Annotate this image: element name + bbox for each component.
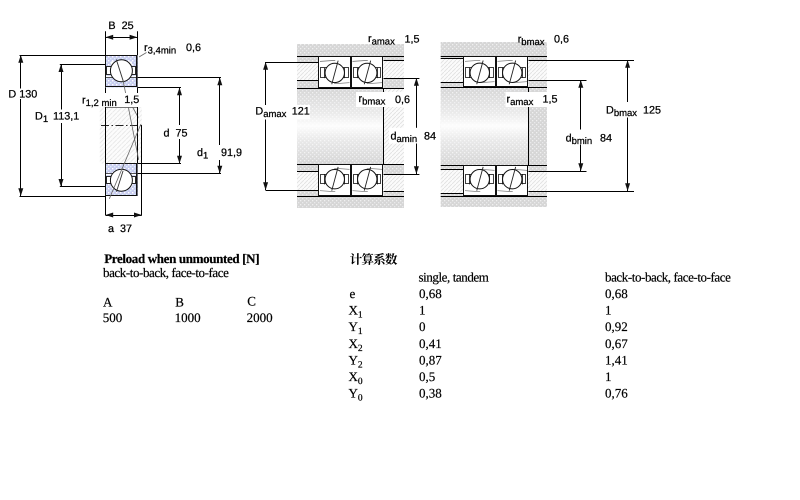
svg-text:0,76: 0,76 (605, 386, 628, 401)
svg-text:1: 1 (419, 303, 426, 318)
svg-text:0,5: 0,5 (419, 369, 435, 384)
svg-text:Preload when unmounted [N]: Preload when unmounted [N] (104, 251, 259, 266)
svg-text:1,5: 1,5 (405, 34, 420, 46)
svg-text:0,67: 0,67 (605, 336, 628, 351)
svg-text:1,5: 1,5 (543, 94, 558, 106)
svg-text:0,92: 0,92 (605, 319, 628, 334)
svg-text:D 130: D 130 (8, 89, 37, 101)
svg-text:a 37: a 37 (108, 223, 132, 235)
svg-text:91,9: 91,9 (221, 147, 242, 159)
svg-text:1,5: 1,5 (124, 94, 139, 106)
svg-text:84: 84 (600, 132, 612, 144)
svg-text:0,6: 0,6 (186, 42, 201, 54)
svg-text:0,6: 0,6 (395, 94, 410, 106)
svg-text:1: 1 (605, 303, 612, 318)
svg-text:d 75: d 75 (164, 128, 188, 140)
svg-text:0,68: 0,68 (419, 286, 442, 301)
svg-text:121: 121 (292, 106, 310, 118)
svg-text:500: 500 (103, 310, 123, 325)
svg-text:125: 125 (643, 105, 661, 117)
svg-text:back-to-back, face-to-face: back-to-back, face-to-face (103, 265, 229, 280)
svg-text:e: e (350, 286, 356, 301)
svg-text:single, tandem: single, tandem (419, 270, 489, 285)
svg-text:1: 1 (605, 369, 612, 384)
svg-text:84: 84 (424, 130, 436, 142)
svg-text:0,6: 0,6 (554, 34, 569, 46)
svg-text:0,68: 0,68 (605, 286, 628, 301)
svg-text:A: A (103, 294, 113, 309)
svg-text:0,41: 0,41 (419, 336, 442, 351)
svg-text:2000: 2000 (247, 310, 273, 325)
svg-text:back-to-back, face-to-face: back-to-back, face-to-face (605, 270, 731, 285)
svg-text:B: B (175, 294, 184, 309)
svg-text:113,1: 113,1 (53, 111, 79, 123)
svg-text:1,41: 1,41 (605, 352, 628, 367)
svg-text:1000: 1000 (175, 310, 201, 325)
svg-text:0: 0 (419, 319, 426, 334)
svg-text:0,38: 0,38 (419, 386, 442, 401)
svg-text:B 25: B 25 (108, 20, 133, 32)
svg-text:0,87: 0,87 (419, 352, 442, 367)
svg-text:C: C (247, 293, 256, 308)
